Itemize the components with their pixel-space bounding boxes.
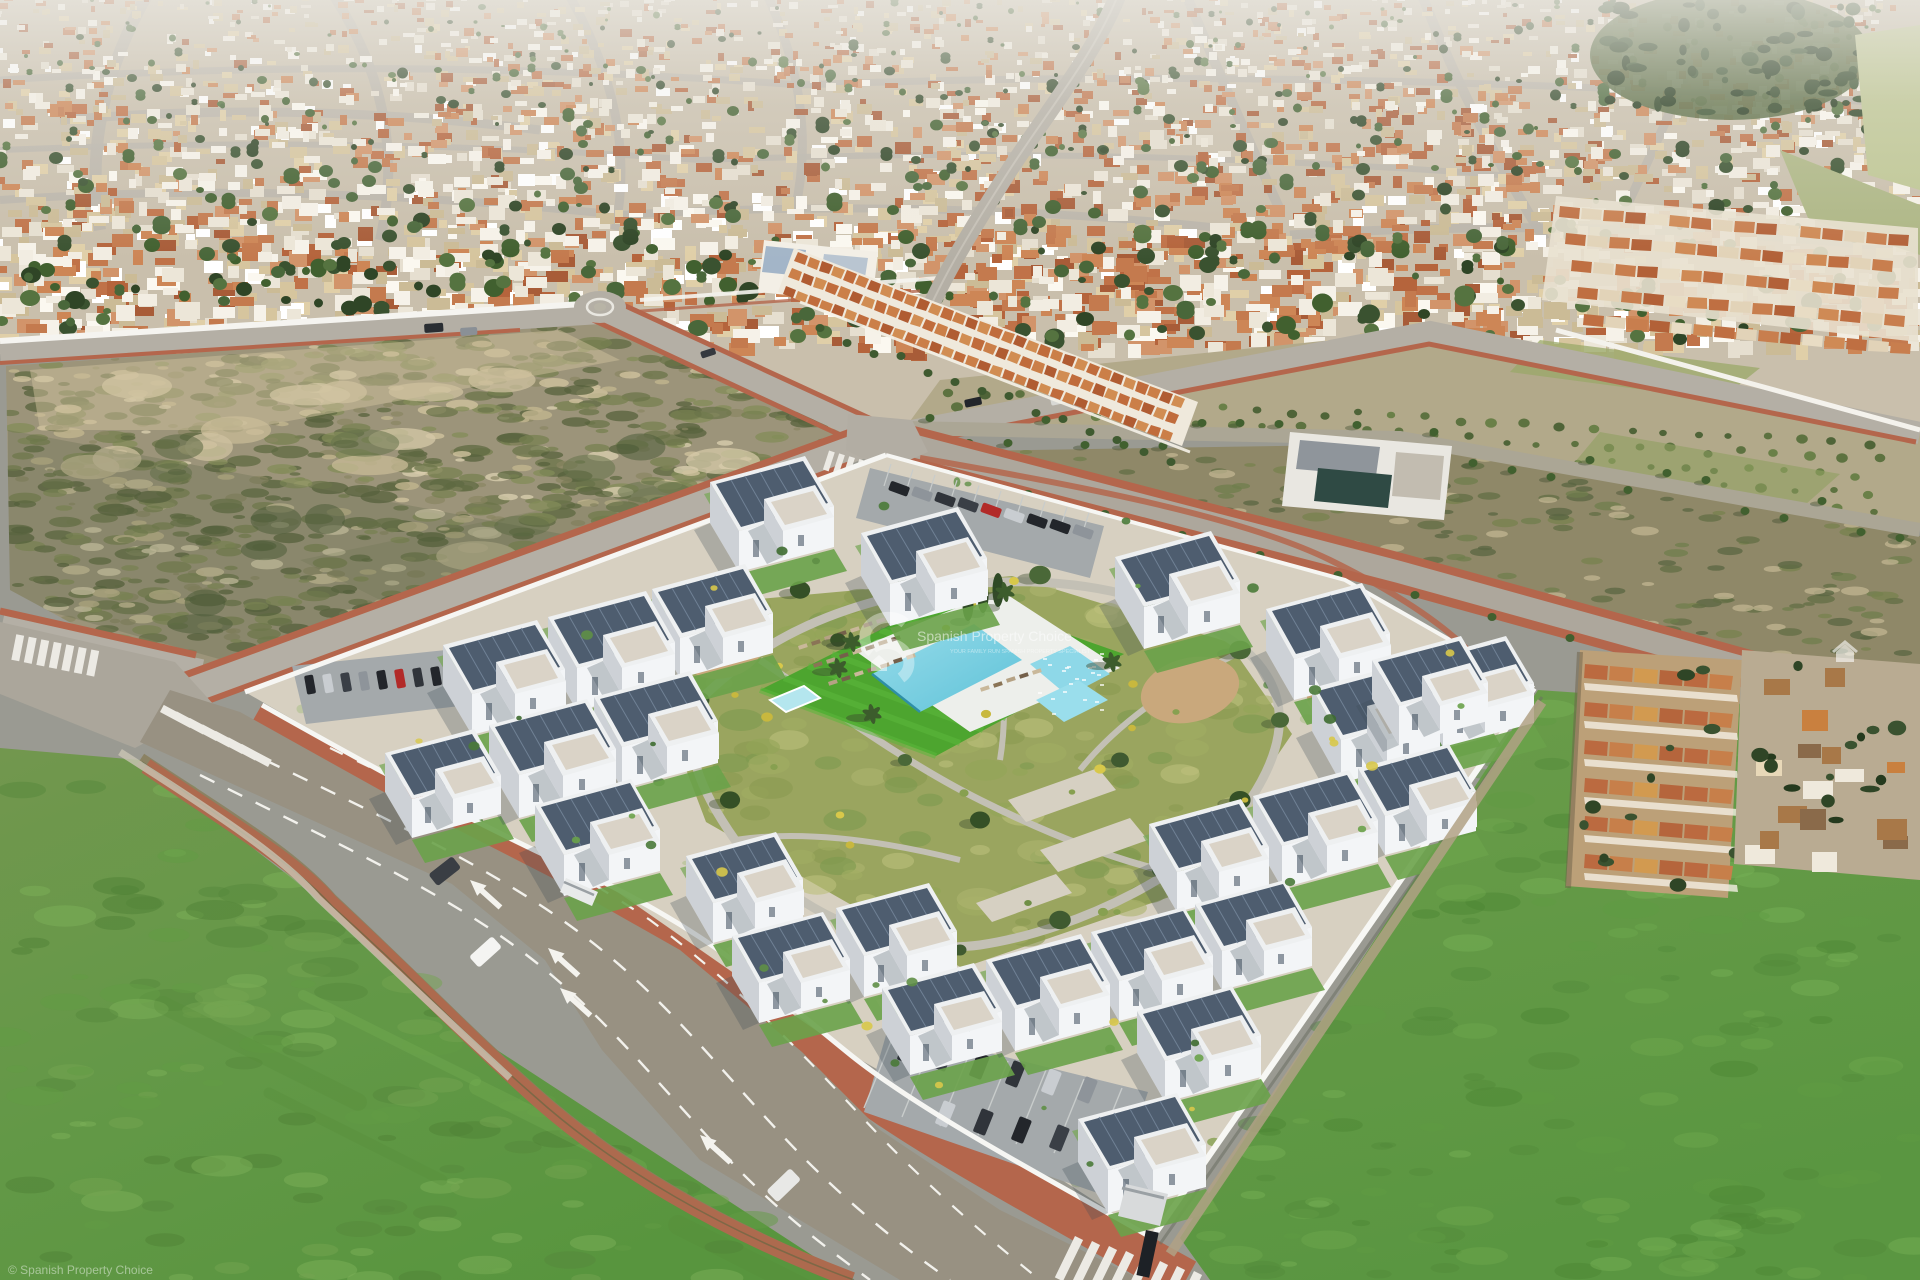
- svg-text:YOUR FAMILY RUN SPANISH PROPER: YOUR FAMILY RUN SPANISH PROPERTY SPECIAL…: [950, 649, 1091, 655]
- svg-text:Spanish Property Choice: Spanish Property Choice: [917, 628, 1072, 644]
- svg-text:© Spanish Property Choice: © Spanish Property Choice: [8, 1263, 153, 1277]
